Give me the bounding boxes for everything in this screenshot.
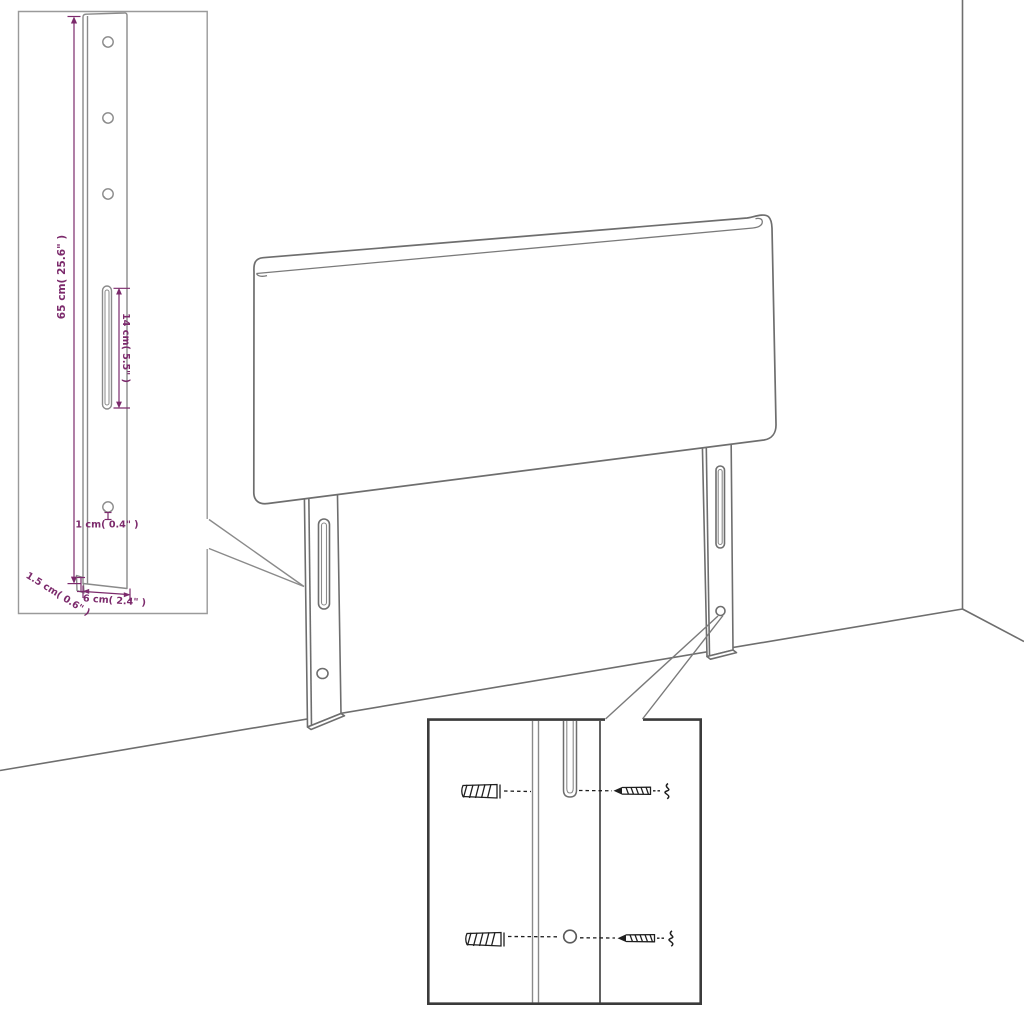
- bracket-slot: [103, 286, 112, 409]
- right-leg: [702, 425, 737, 659]
- bracket-detail-inset: 65 cm( 25.6" ) 14 cm( 5.5" ) 1 cm( 0.4" …: [19, 12, 208, 619]
- headboard-panel: [254, 215, 776, 504]
- diagram-canvas: 65 cm( 25.6" ) 14 cm( 5.5" ) 1 cm( 0.4" …: [0, 0, 1024, 1024]
- hardware-callout-lines: [606, 616, 724, 720]
- left-leg-slot: [319, 519, 330, 609]
- right-leg-slot: [716, 466, 725, 548]
- dim-hole-label: 1 cm( 0.4" ): [75, 520, 138, 531]
- dim-height-label: 65 cm( 25.6" ): [56, 235, 68, 319]
- headboard-dimension-diagram: 65 cm( 25.6" ) 14 cm( 5.5" ) 1 cm( 0.4" …: [0, 0, 1024, 1024]
- left-leg: [304, 465, 345, 730]
- dim-slot-label: 14 cm( 5.5" ): [120, 313, 131, 383]
- strip-hole: [564, 930, 577, 943]
- bracket-callout-lines: [209, 520, 304, 587]
- right-leg-hole: [716, 607, 725, 616]
- left-leg-hole: [317, 669, 328, 679]
- hardware-detail-inset: [427, 719, 702, 1006]
